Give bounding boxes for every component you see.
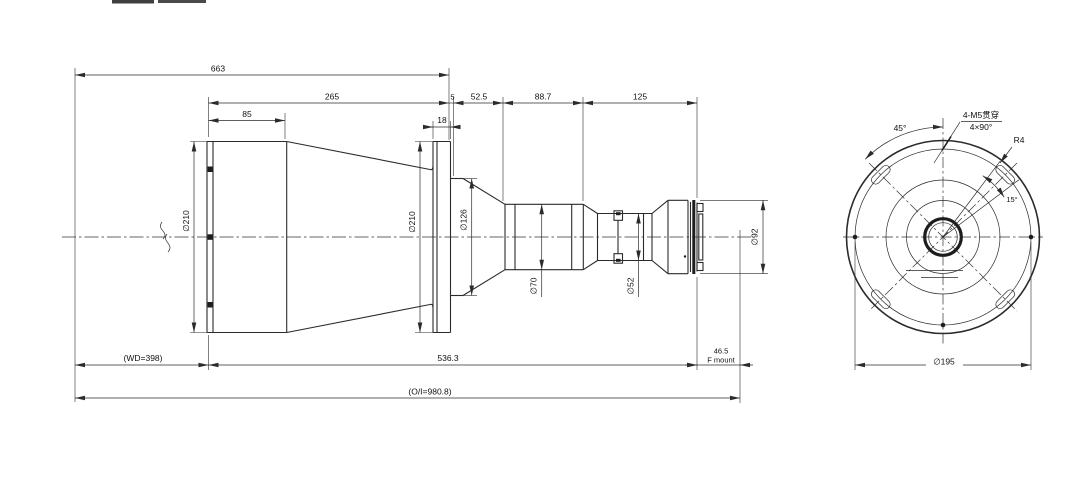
dim-536-3: 536.3	[437, 353, 459, 363]
dim-88-7: 88.7	[535, 92, 552, 102]
side-view-extension-lines	[75, 68, 768, 403]
dim-overall-663: 663	[211, 64, 225, 74]
dim-5: 5	[450, 93, 454, 102]
break-symbol	[160, 222, 165, 239]
dim-52-5: 52.5	[471, 92, 488, 102]
dim-dia126: ∅126	[459, 209, 469, 231]
dim-265: 265	[325, 92, 339, 102]
dim-46-5: 46.5	[714, 347, 729, 356]
m5-hole-left	[853, 235, 858, 240]
m5-hole-right	[1029, 235, 1034, 240]
dim-angle45: 45°	[894, 123, 907, 133]
dim-85: 85	[242, 109, 252, 119]
dim-wd398: (WD=398)	[124, 353, 163, 363]
dim-f-mount: F mount	[707, 356, 735, 365]
dim-dia210-flange: ∅210	[407, 211, 417, 233]
dim-r4: R4	[1014, 135, 1025, 145]
dim-oi980-8: (O/I=980.8)	[408, 387, 451, 397]
lens-engineering-drawing: 663 265 5 52.5 88.7 125 85 18 ∅210 ∅210 …	[0, 0, 1081, 487]
dim-dia195: ∅195	[933, 357, 955, 367]
dim-dia92: ∅92	[750, 228, 760, 245]
print-artifact	[112, 0, 206, 4]
dim-dia210-front: ∅210	[181, 210, 191, 232]
label-m5-holes: 4-M5贯穿	[963, 110, 999, 120]
m5-hole-bottom	[941, 323, 946, 328]
side-view-dimensions: 663 265 5 52.5 88.7 125 85 18 ∅210 ∅210 …	[75, 64, 763, 399]
dim-125: 125	[633, 92, 647, 102]
label-4x90: 4×90°	[970, 122, 993, 132]
dim-angle15: 15°	[1006, 195, 1017, 204]
dim-dia70: ∅70	[529, 277, 539, 294]
dim-18: 18	[437, 115, 447, 125]
dim-dia52: ∅52	[626, 277, 636, 294]
drawing-canvas: 663 265 5 52.5 88.7 125 85 18 ∅210 ∅210 …	[0, 0, 1081, 487]
